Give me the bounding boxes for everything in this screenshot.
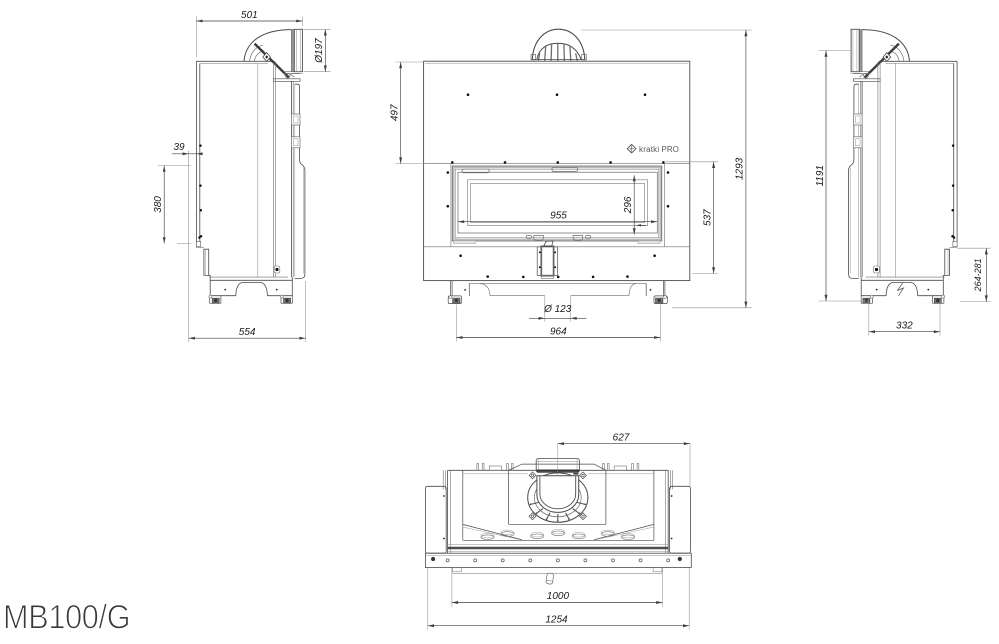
- svg-text:955: 955: [550, 211, 567, 222]
- svg-text:Ø 123: Ø 123: [543, 304, 572, 315]
- svg-text:332: 332: [896, 321, 913, 332]
- svg-text:264-281: 264-281: [973, 258, 983, 292]
- svg-text:497: 497: [390, 104, 401, 121]
- svg-text:296: 296: [623, 196, 634, 214]
- svg-text:501: 501: [241, 10, 258, 21]
- svg-text:39: 39: [173, 142, 185, 153]
- svg-text:PRO: PRO: [662, 145, 679, 154]
- svg-text:964: 964: [550, 326, 567, 337]
- svg-text:380: 380: [153, 196, 164, 213]
- svg-text:1191: 1191: [815, 165, 826, 187]
- svg-text:kratki: kratki: [639, 145, 659, 154]
- svg-text:1293: 1293: [735, 157, 746, 180]
- svg-text:627: 627: [613, 432, 630, 443]
- svg-text:MB100/G: MB100/G: [3, 598, 130, 636]
- svg-text:554: 554: [239, 327, 256, 338]
- svg-text:537: 537: [702, 209, 713, 226]
- svg-text:1000: 1000: [547, 591, 570, 602]
- svg-text:Ø197: Ø197: [314, 38, 325, 64]
- svg-text:1254: 1254: [545, 614, 568, 625]
